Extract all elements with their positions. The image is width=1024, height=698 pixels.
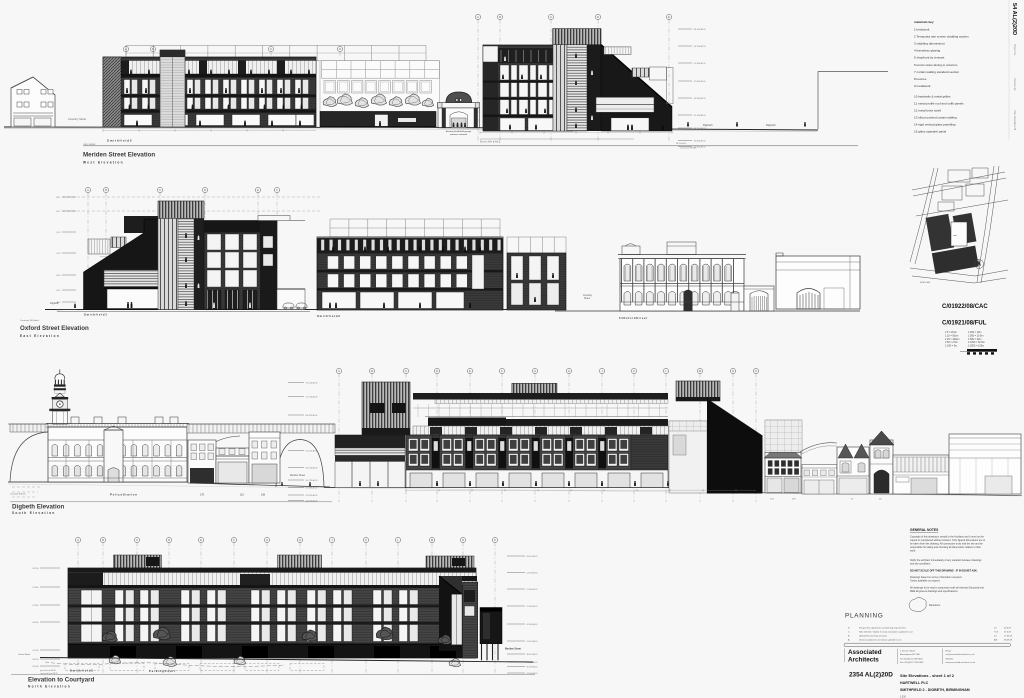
svg-text:P a r k i n g C o u r t: P a r k i n g C o u r t <box>149 669 175 673</box>
svg-text:41.160: 41.160 <box>32 650 39 652</box>
svg-text:www.associated-architects.co.u: www.associated-architects.co.uk <box>946 661 977 664</box>
svg-text:D: D <box>597 15 599 19</box>
svg-text:materials key: materials key <box>914 20 934 24</box>
svg-text:34.600 AOD: 34.600 AOD <box>527 672 538 675</box>
svg-text:58.125 AOD: 58.125 AOD <box>306 467 318 470</box>
svg-text:AW: AW <box>994 639 997 642</box>
svg-text:Date November 08: Date November 08 <box>1013 110 1016 131</box>
svg-text:36.500 AOD: 36.500 AOD <box>527 661 538 664</box>
svg-text:and site conditions.: and site conditions. <box>910 563 931 566</box>
svg-text:aa@associated-architects.co.uk: aa@associated-architects.co.uk <box>946 653 976 656</box>
svg-text:E: E <box>200 538 202 542</box>
svg-text:courtyard level 38.25: courtyard level 38.25 <box>40 672 58 675</box>
svg-text:Digbeth: Digbeth <box>766 123 776 127</box>
svg-text:7 curtain walling standard se: 7 curtain walling standard section <box>914 70 959 74</box>
svg-text:ground level 38.46: ground level 38.46 <box>40 669 56 672</box>
svg-text:C/01921/08/FUL: C/01921/08/FUL <box>942 321 987 327</box>
svg-text:Street: Street <box>584 297 590 300</box>
svg-text:5 4 O x f o r d S t r e e: 5 4 O x f o r d S t r e e t <box>619 316 647 320</box>
svg-text:41.160 AOD: 41.160 AOD <box>527 640 538 643</box>
svg-text:street level 38.46m: street level 38.46m <box>680 147 696 150</box>
svg-text:1:2500 = 125m: 1:2500 = 125m <box>968 345 984 348</box>
svg-text:Meriden Street: Meriden Street <box>505 648 521 651</box>
svg-text:N: N <box>732 369 734 373</box>
svg-text:M: M <box>699 369 701 373</box>
svg-text:S m i t h f i e l d 2: S m i t h f i e l d 2 <box>107 139 132 143</box>
svg-text:Architects: Architects <box>848 657 879 664</box>
svg-text:13 silicon jointed curtain wal: 13 silicon jointed curtain walling <box>914 116 957 120</box>
svg-text:South Elevation: South Elevation <box>12 511 56 515</box>
svg-text:Birmingham B1 1SE: Birmingham B1 1SE <box>900 653 920 656</box>
svg-text:Digbeth: Digbeth <box>50 301 59 305</box>
svg-text:6 terran stone facing to colu: 6 terran stone facing to columns <box>914 63 958 67</box>
svg-text:10 handrails & metal grilles: 10 handrails & metal grilles <box>914 94 951 98</box>
svg-text:4 frameless glazing: 4 frameless glazing <box>914 49 941 53</box>
svg-text:GENERAL NOTES: GENERAL NOTES <box>910 528 939 532</box>
svg-text:K: K <box>633 369 635 373</box>
svg-text:Meriden Street: Meriden Street <box>290 474 305 477</box>
svg-text:5 shopfront by tennant: 5 shopfront by tennant <box>914 56 944 60</box>
svg-text:Email: Email <box>946 651 952 653</box>
svg-text:B: B <box>371 369 373 373</box>
svg-text:P o l i c e S t a t i o n: P o l i c e S t a t i o n <box>110 493 137 497</box>
svg-text:West Elevation: West Elevation <box>83 161 124 165</box>
svg-text:14 rigid vertical glass panell: 14 rigid vertical glass panelling <box>914 123 956 127</box>
svg-text:44.525 AOD: 44.525 AOD <box>306 500 318 503</box>
svg-text:51.360 AOD: 51.360 AOD <box>527 588 538 591</box>
svg-text:G: G <box>534 369 536 373</box>
svg-text:PLANNING: PLANNING <box>845 613 884 620</box>
svg-text:M: M <box>431 538 433 542</box>
svg-text:41.160 AOD: 41.160 AOD <box>694 114 706 117</box>
svg-text:58.160 AOD: 58.160 AOD <box>527 555 538 558</box>
svg-text:108: 108 <box>261 494 266 497</box>
svg-text:Site Elevations - sheet 1 of: Site Elevations - sheet 1 of 2 <box>900 673 955 678</box>
svg-text:51.325 AOD: 51.325 AOD <box>306 487 318 490</box>
svg-text:3 cladding (aluminium): 3 cladding (aluminium) <box>914 42 945 46</box>
svg-text:B: B <box>499 15 501 19</box>
svg-text:work.: work. <box>910 549 916 552</box>
svg-text:Existing Smithfield garage: Existing Smithfield garage <box>446 130 472 133</box>
svg-text:C: C <box>159 188 161 192</box>
svg-text:Coventry: Coventry <box>583 294 593 297</box>
svg-text:54.725 AOD: 54.725 AOD <box>306 479 318 482</box>
svg-text:35.900 AOD: 35.900 AOD <box>694 140 706 143</box>
svg-text:44.560: 44.560 <box>32 622 39 624</box>
svg-text:D: D <box>168 538 170 542</box>
svg-text:35.900: 35.900 <box>32 666 39 668</box>
svg-text:51.360 AOD: 51.360 AOD <box>694 62 706 65</box>
svg-text:47.960 AOD: 47.960 AOD <box>694 80 706 83</box>
svg-text:A: A <box>77 538 79 542</box>
svg-text:30.6.09: 30.6.09 <box>1004 628 1012 630</box>
svg-text:17.02.09: 17.02.09 <box>1004 636 1013 638</box>
svg-text:38.250 AOD: 38.250 AOD <box>676 142 687 145</box>
svg-text:71.725 AOD: 71.725 AOD <box>306 396 318 399</box>
svg-text:12 metal brise soleil: 12 metal brise soleil <box>914 109 941 113</box>
svg-text:G: G <box>266 538 268 542</box>
svg-text:9 metalwork: 9 metalwork <box>914 84 931 88</box>
svg-text:HARTWELL PLC: HARTWELL PLC <box>900 681 929 685</box>
svg-text:E: E <box>668 15 670 19</box>
svg-text:SMITHFIELD 2 - DIGBETH, BIRMIN: SMITHFIELD 2 - DIGBETH, BIRMINGHAM <box>900 688 970 692</box>
svg-text:H: H <box>568 369 570 373</box>
svg-text:General updated to annotation: General updated to annotation updated to… <box>859 639 902 642</box>
svg-text:15 glass spandrel panel: 15 glass spandrel panel <box>914 130 947 134</box>
svg-text:38.250 AOD: 38.250 AOD <box>527 653 538 656</box>
svg-text:C: C <box>550 15 552 19</box>
svg-text:D: D <box>436 369 438 373</box>
svg-text:B: B <box>102 538 104 542</box>
svg-text:A: A <box>338 369 340 373</box>
svg-text:11 metal profile roof and soff: 11 metal profile roof and soffit panels <box>914 102 964 106</box>
svg-text:entrance retained: entrance retained <box>450 133 468 136</box>
svg-text:Meriden Street Elevation: Meriden Street Elevation <box>83 152 155 159</box>
svg-text:East Elevation: East Elevation <box>20 334 60 338</box>
svg-text:47.925 AOD: 47.925 AOD <box>306 494 318 497</box>
svg-text:M&E Engineers drawings and spe: M&E Engineers drawings and specification… <box>910 590 958 593</box>
svg-text:A: A <box>477 15 479 19</box>
svg-text:1 brickwork: 1 brickwork <box>914 28 930 32</box>
svg-text:1 Severn Street: 1 Severn Street <box>900 650 916 653</box>
svg-text:S m i t h f i e l d 2: S m i t h f i e l d 2 <box>70 669 93 673</box>
svg-text:D: D <box>204 188 206 192</box>
svg-text:B: B <box>105 188 107 192</box>
svg-text:47.960: 47.960 <box>32 605 39 607</box>
svg-text:54 AL(2)20D: 54 AL(2)20D <box>1011 3 1017 35</box>
svg-text:58.160 AOD: 58.160 AOD <box>694 28 706 31</box>
svg-text:170: 170 <box>200 494 205 497</box>
svg-text:P: P <box>494 538 496 542</box>
svg-text:Oxford Street Elevation: Oxford Street Elevation <box>20 325 89 332</box>
svg-text:Digbeth: Digbeth <box>703 123 713 127</box>
svg-text:E: E <box>469 369 471 373</box>
svg-text:C: C <box>136 538 138 542</box>
svg-text:North Elevation: North Elevation <box>28 685 71 689</box>
svg-text:Onsite available on request.: Onsite available on request. <box>910 579 941 582</box>
svg-text:C: C <box>405 369 407 373</box>
svg-text:2354 AL(2)20D: 2354 AL(2)20D <box>849 672 893 679</box>
svg-text:Oxford Road: Oxford Road <box>18 653 31 656</box>
svg-text:MOAT LANE: MOAT LANE <box>920 281 931 284</box>
svg-text:P: P <box>755 369 757 373</box>
svg-text:Coventry St/Oxford: Coventry St/Oxford <box>20 319 39 322</box>
svg-text:DO NOT SCALE OFF THIS DRAWING: DO NOT SCALE OFF THIS DRAWING - IF IN DO… <box>910 570 978 573</box>
svg-text:54.760: 54.760 <box>32 568 39 570</box>
svg-text:TCS: TCS <box>994 632 999 634</box>
svg-text:C: C <box>270 47 272 51</box>
svg-text:OSD 196/96: OSD 196/96 <box>83 144 96 146</box>
svg-text:47.960 AOD: 47.960 AOD <box>527 605 538 608</box>
svg-text:Parapet line adjusted to suit: Parapet line adjusted to suit planning r… <box>859 627 906 630</box>
svg-text:44.560 AOD: 44.560 AOD <box>694 97 706 100</box>
svg-text:Website: Website <box>946 658 955 661</box>
svg-text:responsible for taking and che: responsible for taking and checking all … <box>910 546 981 549</box>
svg-text:Project No: Project No <box>1013 44 1016 56</box>
svg-text:38.250: 38.250 <box>32 659 39 661</box>
svg-text:Note Deleted / skyline & visua: Note Deleted / skyline & visual annotati… <box>859 631 913 634</box>
svg-text:Coventry Street: Coventry Street <box>68 117 86 121</box>
svg-text:1:100 = 5m: 1:100 = 5m <box>945 345 957 348</box>
svg-text:N: N <box>462 538 464 542</box>
svg-text:A: A <box>125 47 127 51</box>
svg-text:54.760 AOD: 54.760 AOD <box>694 45 706 48</box>
svg-text:Associated: Associated <box>848 649 882 656</box>
svg-text:C/01922/08/CAC: C/01922/08/CAC <box>942 304 988 310</box>
svg-text:D: D <box>339 47 341 51</box>
svg-text:S m i t h f i e l d 1: S m i t h f i e l d 1 <box>480 140 501 144</box>
svg-text:68.325 AOD: 68.325 AOD <box>306 414 318 417</box>
svg-text:B: B <box>152 47 154 51</box>
svg-text:38.250 AOD: 38.250 AOD <box>694 127 706 130</box>
svg-text:Updated for planning revisions: Updated for planning revisions <box>859 635 887 638</box>
svg-text:A: A <box>87 188 89 192</box>
svg-text:51.360: 51.360 <box>32 587 39 589</box>
svg-text:Coventry St/Dale: Coventry St/Dale <box>10 493 27 496</box>
svg-text:Revisions: Revisions <box>929 603 941 607</box>
svg-text:Checked by: Checked by <box>1013 78 1016 91</box>
svg-text:K: K <box>365 538 367 542</box>
svg-text:Digbeth Elevation: Digbeth Elevation <box>12 504 64 511</box>
svg-text:27.4.09: 27.4.09 <box>1004 632 1012 634</box>
svg-text:H: H <box>299 538 301 542</box>
svg-text:2 Terracotta rain screen clad: 2 Terracotta rain screen cladding system <box>914 35 969 39</box>
svg-text:Elevation to Courtyard: Elevation to Courtyard <box>28 676 95 683</box>
svg-text:44.560 AOD: 44.560 AOD <box>527 623 538 626</box>
svg-text:E: E <box>257 188 259 192</box>
svg-text:75.125 AOD: 75.125 AOD <box>306 382 318 385</box>
svg-text:08.09.08: 08.09.08 <box>1004 640 1013 642</box>
svg-text:8 louvres: 8 louvres <box>914 77 927 81</box>
svg-text:35.900 AOD: 35.900 AOD <box>527 666 538 669</box>
svg-text:110: 110 <box>240 494 244 497</box>
svg-text:Tel 44 (0)121 233 6600: Tel 44 (0)121 233 6600 <box>900 659 923 661</box>
svg-text:S m i t h f i e l d 2: S m i t h f i e l d 2 <box>317 314 340 318</box>
svg-text:61.525 AOD: 61.525 AOD <box>306 450 318 453</box>
svg-text:S m i t h f i e l d 1: S m i t h f i e l d 1 <box>84 313 107 317</box>
svg-text:Fax 44 (0)121 233 6300: Fax 44 (0)121 233 6300 <box>900 662 924 664</box>
svg-text:54.760 AOD: 54.760 AOD <box>527 572 538 575</box>
